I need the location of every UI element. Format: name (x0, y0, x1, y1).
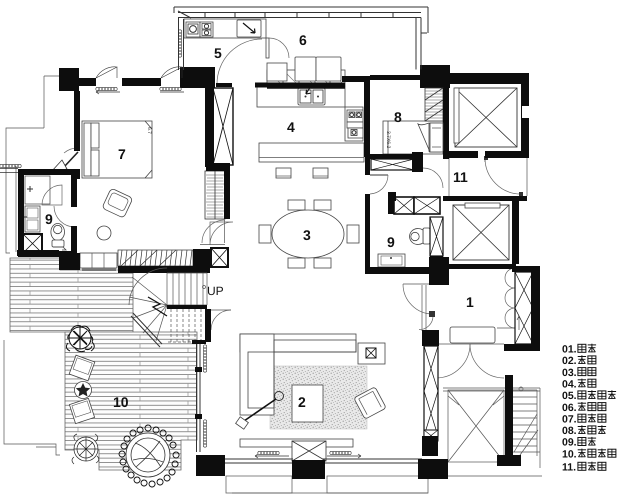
svg-text:9: 9 (387, 234, 395, 250)
svg-text:4: 4 (287, 119, 295, 135)
svg-text:2: 2 (298, 394, 306, 410)
svg-text:10.: 10. (562, 448, 577, 460)
svg-text:01.: 01. (562, 344, 577, 356)
svg-text:1: 1 (466, 294, 474, 310)
svg-text:9: 9 (45, 211, 53, 227)
svg-text:05.: 05. (562, 390, 577, 402)
svg-text:3: 3 (303, 227, 311, 243)
svg-text:07.: 07. (562, 413, 577, 425)
svg-text:6: 6 (299, 32, 307, 48)
svg-text:08.: 08. (562, 425, 577, 437)
svg-text:7: 7 (118, 146, 126, 162)
svg-text:5: 5 (214, 45, 222, 61)
svg-text:10: 10 (113, 394, 129, 410)
svg-text:04.: 04. (562, 378, 577, 390)
svg-text:UP: UP (207, 284, 224, 298)
svg-text:11.: 11. (562, 462, 576, 474)
svg-text:06.: 06. (562, 402, 577, 414)
svg-text:3.7X6.2: 3.7X6.2 (385, 131, 391, 148)
svg-text:02.: 02. (562, 355, 577, 367)
svg-text:6.7: 6.7 (146, 127, 152, 134)
svg-text:11: 11 (453, 169, 468, 185)
svg-text:03.: 03. (562, 367, 577, 379)
svg-text:8: 8 (394, 109, 402, 125)
svg-text:09.: 09. (562, 437, 577, 449)
